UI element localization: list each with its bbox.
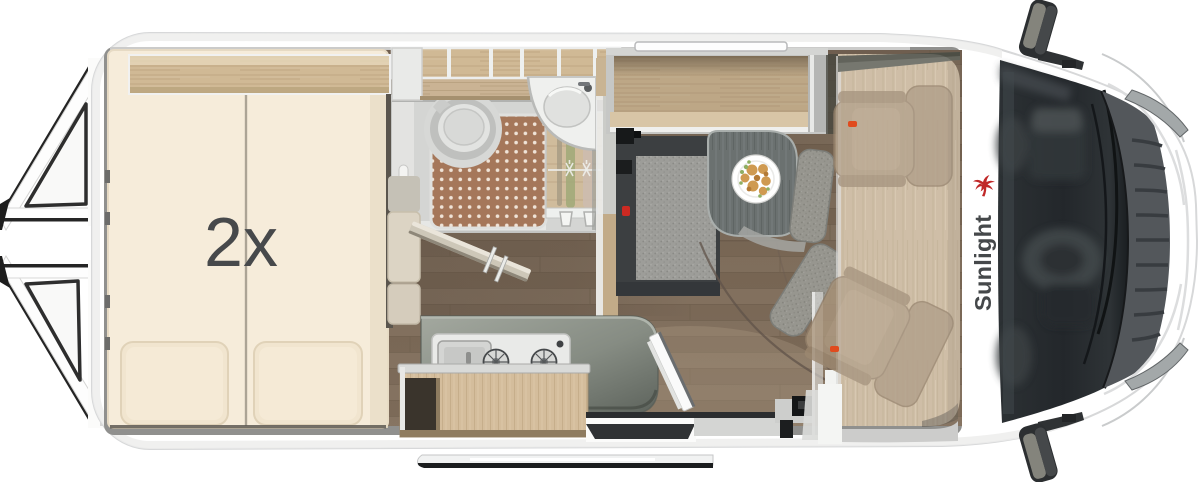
svg-text:Sunlight: Sunlight bbox=[970, 215, 996, 311]
svg-text:2x: 2x bbox=[204, 203, 278, 281]
